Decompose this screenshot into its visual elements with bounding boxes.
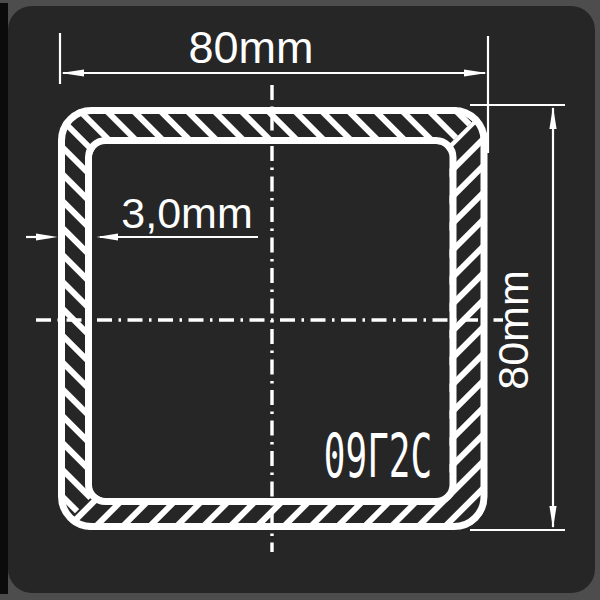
wall-thickness-label: 3,0mm bbox=[121, 189, 252, 237]
arrow-right-icon bbox=[464, 69, 487, 76]
arrow-up-icon bbox=[549, 107, 556, 130]
cross-section-diagram: 80mm 80mm 3,0mm 09Г2С bbox=[0, 0, 600, 600]
steel-grade-label: 09Г2С bbox=[324, 421, 432, 491]
arrow-down-icon bbox=[549, 506, 556, 529]
height-dimension-label: 80mm bbox=[489, 270, 537, 389]
arrow-right-small-icon bbox=[36, 233, 58, 240]
arrow-left-icon bbox=[61, 69, 84, 76]
width-dimension-label: 80mm bbox=[188, 22, 313, 73]
arrow-left-small-icon bbox=[97, 233, 119, 240]
